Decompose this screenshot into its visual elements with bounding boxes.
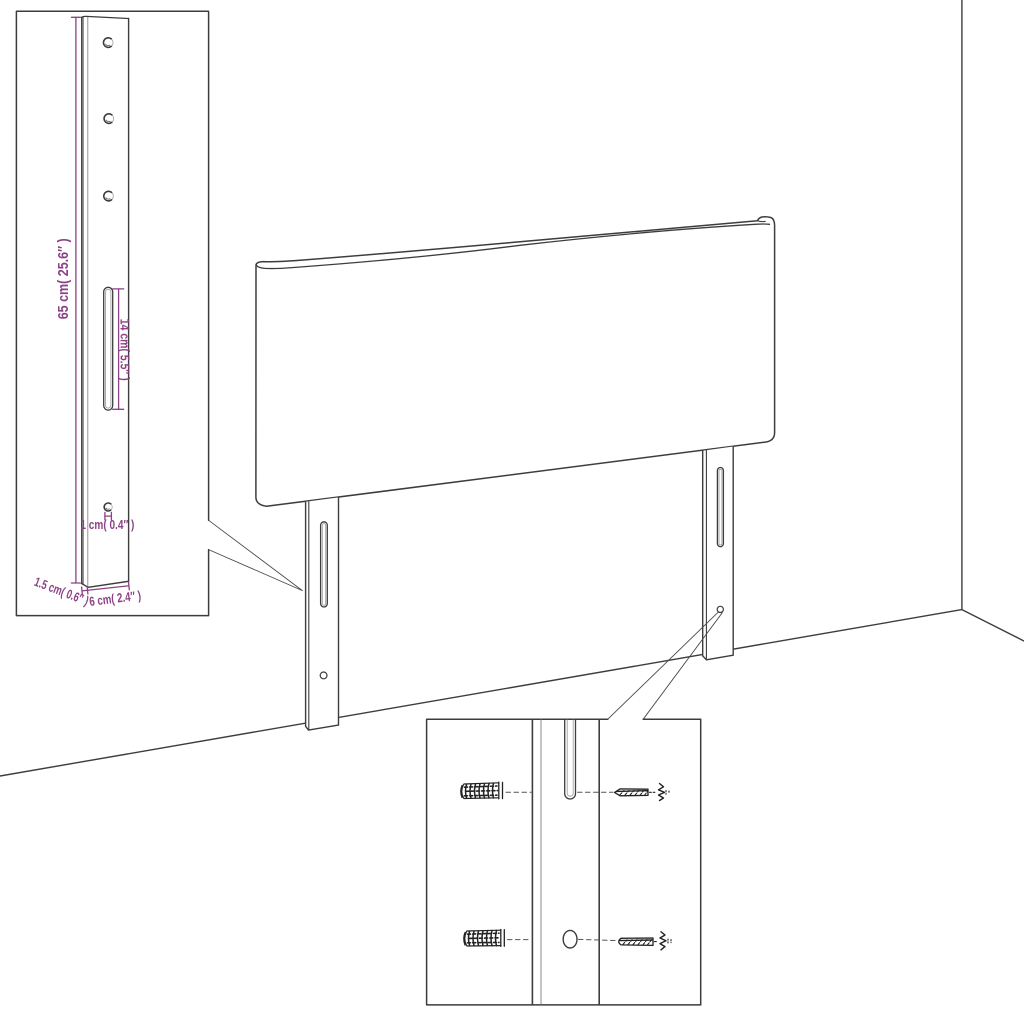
svg-text:14 cm( 5.5″ ): 14 cm( 5.5″ ) xyxy=(118,319,132,381)
svg-text:65 cm( 25.6″ ): 65 cm( 25.6″ ) xyxy=(56,238,72,319)
svg-text:1 cm( 0.4″ ): 1 cm( 0.4″ ) xyxy=(80,517,134,532)
